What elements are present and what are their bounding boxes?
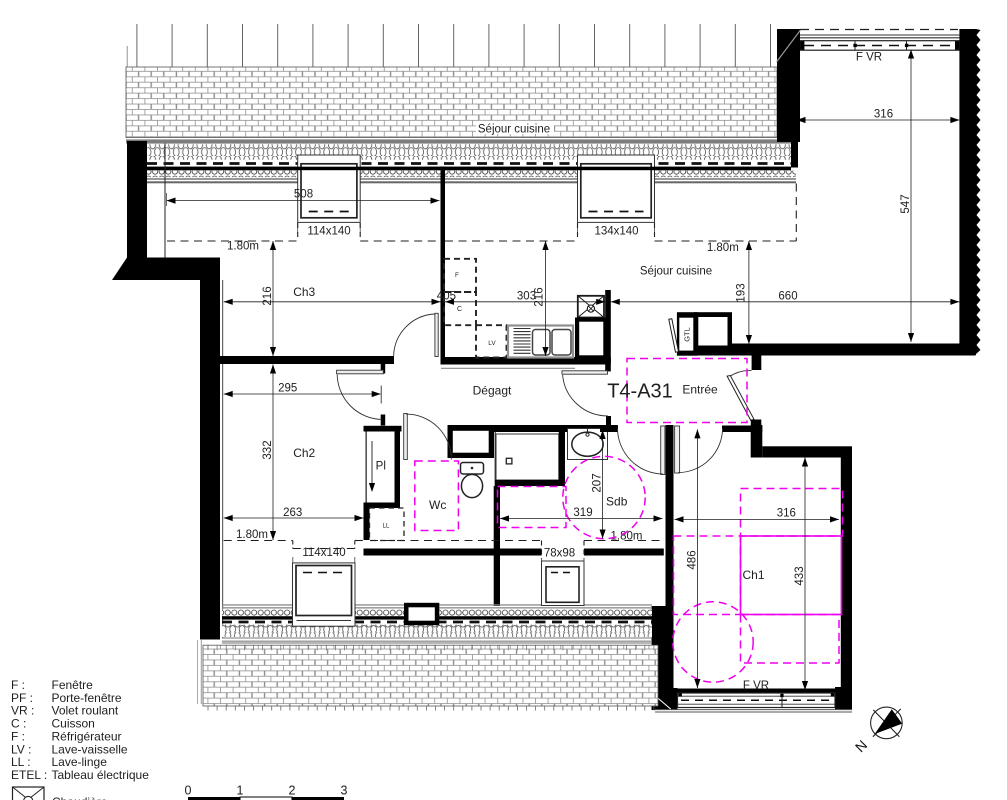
svg-text:Dégagt: Dégagt [473, 384, 512, 398]
svg-text:207: 207 [592, 473, 604, 492]
svg-text:332: 332 [262, 440, 274, 459]
svg-text:T4-A31: T4-A31 [607, 381, 673, 403]
svg-text:486: 486 [687, 550, 699, 569]
svg-text:114x140: 114x140 [307, 226, 350, 238]
svg-text:Séjour cuisine: Séjour cuisine [478, 124, 550, 136]
svg-text:1.80m: 1.80m [707, 242, 739, 254]
svg-text:547: 547 [900, 194, 912, 213]
svg-text:Ch3: Ch3 [293, 285, 315, 299]
svg-text:1.80m: 1.80m [236, 529, 268, 541]
svg-text:134x140: 134x140 [594, 226, 638, 238]
svg-text:Wc: Wc [429, 498, 446, 512]
svg-text:316: 316 [874, 109, 893, 121]
svg-text:263: 263 [283, 507, 302, 519]
svg-text:2: 2 [289, 784, 296, 798]
svg-text:3: 3 [341, 784, 348, 798]
svg-text:GTL: GTL [683, 327, 692, 342]
svg-text:319: 319 [573, 507, 592, 519]
svg-text:0: 0 [185, 784, 192, 798]
svg-text:Ch2: Ch2 [293, 446, 315, 460]
svg-text:F VR: F VR [743, 680, 769, 692]
svg-text:Tableau électrique: Tableau électrique [52, 768, 150, 782]
svg-text:295: 295 [278, 383, 297, 395]
svg-text:Séjour cuisine: Séjour cuisine [640, 266, 712, 278]
svg-text:Chaudière: Chaudière [52, 795, 108, 800]
svg-text:216: 216 [262, 286, 274, 305]
svg-text:Entrée: Entrée [682, 383, 718, 397]
svg-text:F VR: F VR [856, 52, 882, 64]
svg-text:Pl: Pl [376, 460, 386, 472]
svg-text:660: 660 [778, 290, 797, 302]
svg-text:Ch1: Ch1 [742, 568, 764, 582]
svg-text:LL: LL [383, 524, 390, 530]
svg-text:Sdb: Sdb [606, 495, 628, 509]
svg-text:1.80m: 1.80m [227, 241, 259, 253]
svg-text:F: F [455, 272, 459, 279]
svg-text:LV: LV [488, 340, 496, 347]
svg-text:1: 1 [237, 784, 244, 798]
svg-text:508: 508 [294, 189, 313, 201]
svg-text:78x98: 78x98 [544, 548, 575, 560]
svg-text:C: C [457, 306, 462, 313]
svg-text:316: 316 [777, 507, 796, 519]
svg-text:193: 193 [736, 283, 748, 302]
svg-text:433: 433 [794, 566, 806, 585]
svg-text:216: 216 [534, 287, 546, 306]
svg-text:ETEL :: ETEL : [11, 768, 47, 782]
